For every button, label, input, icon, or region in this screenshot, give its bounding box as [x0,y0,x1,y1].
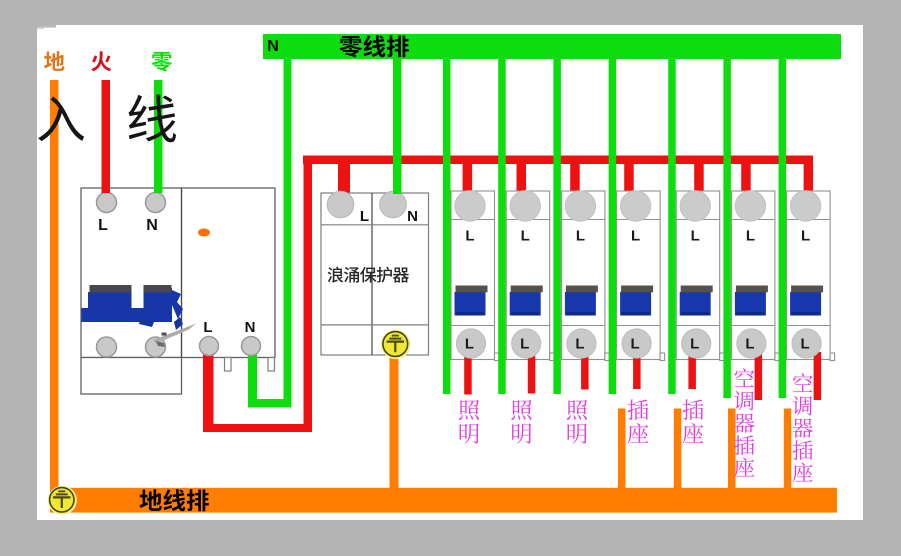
svg-text:L: L [360,208,369,225]
svg-text:L: L [801,228,810,245]
svg-text:N: N [146,217,158,234]
svg-text:L: L [746,228,755,245]
svg-text:L: L [465,228,474,245]
svg-text:L: L [690,336,699,353]
svg-text:L: L [745,336,754,353]
svg-text:L: L [691,228,700,245]
svg-text:L: L [631,228,640,245]
svg-text:L: L [520,336,529,353]
svg-text:L: L [576,228,585,245]
svg-text:N: N [245,319,256,336]
svg-text:L: L [521,228,530,245]
svg-text:N: N [407,208,418,225]
svg-text:L: L [801,336,810,353]
svg-text:L: L [575,336,584,353]
svg-text:N: N [267,38,279,55]
svg-text:L: L [465,336,474,353]
svg-text:L: L [98,217,108,234]
svg-text:L: L [203,319,212,336]
svg-text:L: L [631,336,640,353]
